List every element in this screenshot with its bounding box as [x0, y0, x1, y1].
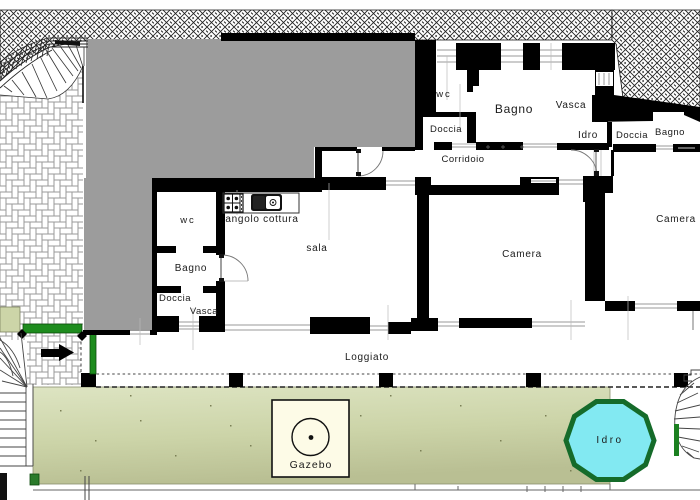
svg-text:Doccia: Doccia [616, 130, 648, 141]
svg-text:Corridoio: Corridoio [441, 154, 484, 165]
svg-text:Camera: Camera [502, 249, 542, 260]
svg-text:wc: wc [435, 89, 452, 100]
svg-text:Doccia: Doccia [159, 293, 191, 304]
svg-text:Bagno: Bagno [655, 127, 685, 138]
svg-text:Camera: Camera [656, 214, 696, 225]
svg-text:Bagno: Bagno [175, 263, 207, 274]
svg-text:Idro: Idro [596, 435, 623, 446]
svg-text:Idro: Idro [578, 130, 598, 141]
svg-text:Bagno: Bagno [495, 102, 533, 116]
svg-text:sala: sala [306, 243, 327, 254]
svg-text:Doccia: Doccia [430, 124, 462, 135]
svg-text:angolo cottura: angolo cottura [225, 214, 298, 225]
svg-text:Vasca: Vasca [190, 306, 218, 317]
svg-text:Loggiato: Loggiato [345, 352, 389, 363]
svg-text:Gazebo: Gazebo [290, 459, 333, 471]
svg-text:wc: wc [179, 215, 196, 226]
svg-text:Vasca: Vasca [556, 100, 587, 111]
